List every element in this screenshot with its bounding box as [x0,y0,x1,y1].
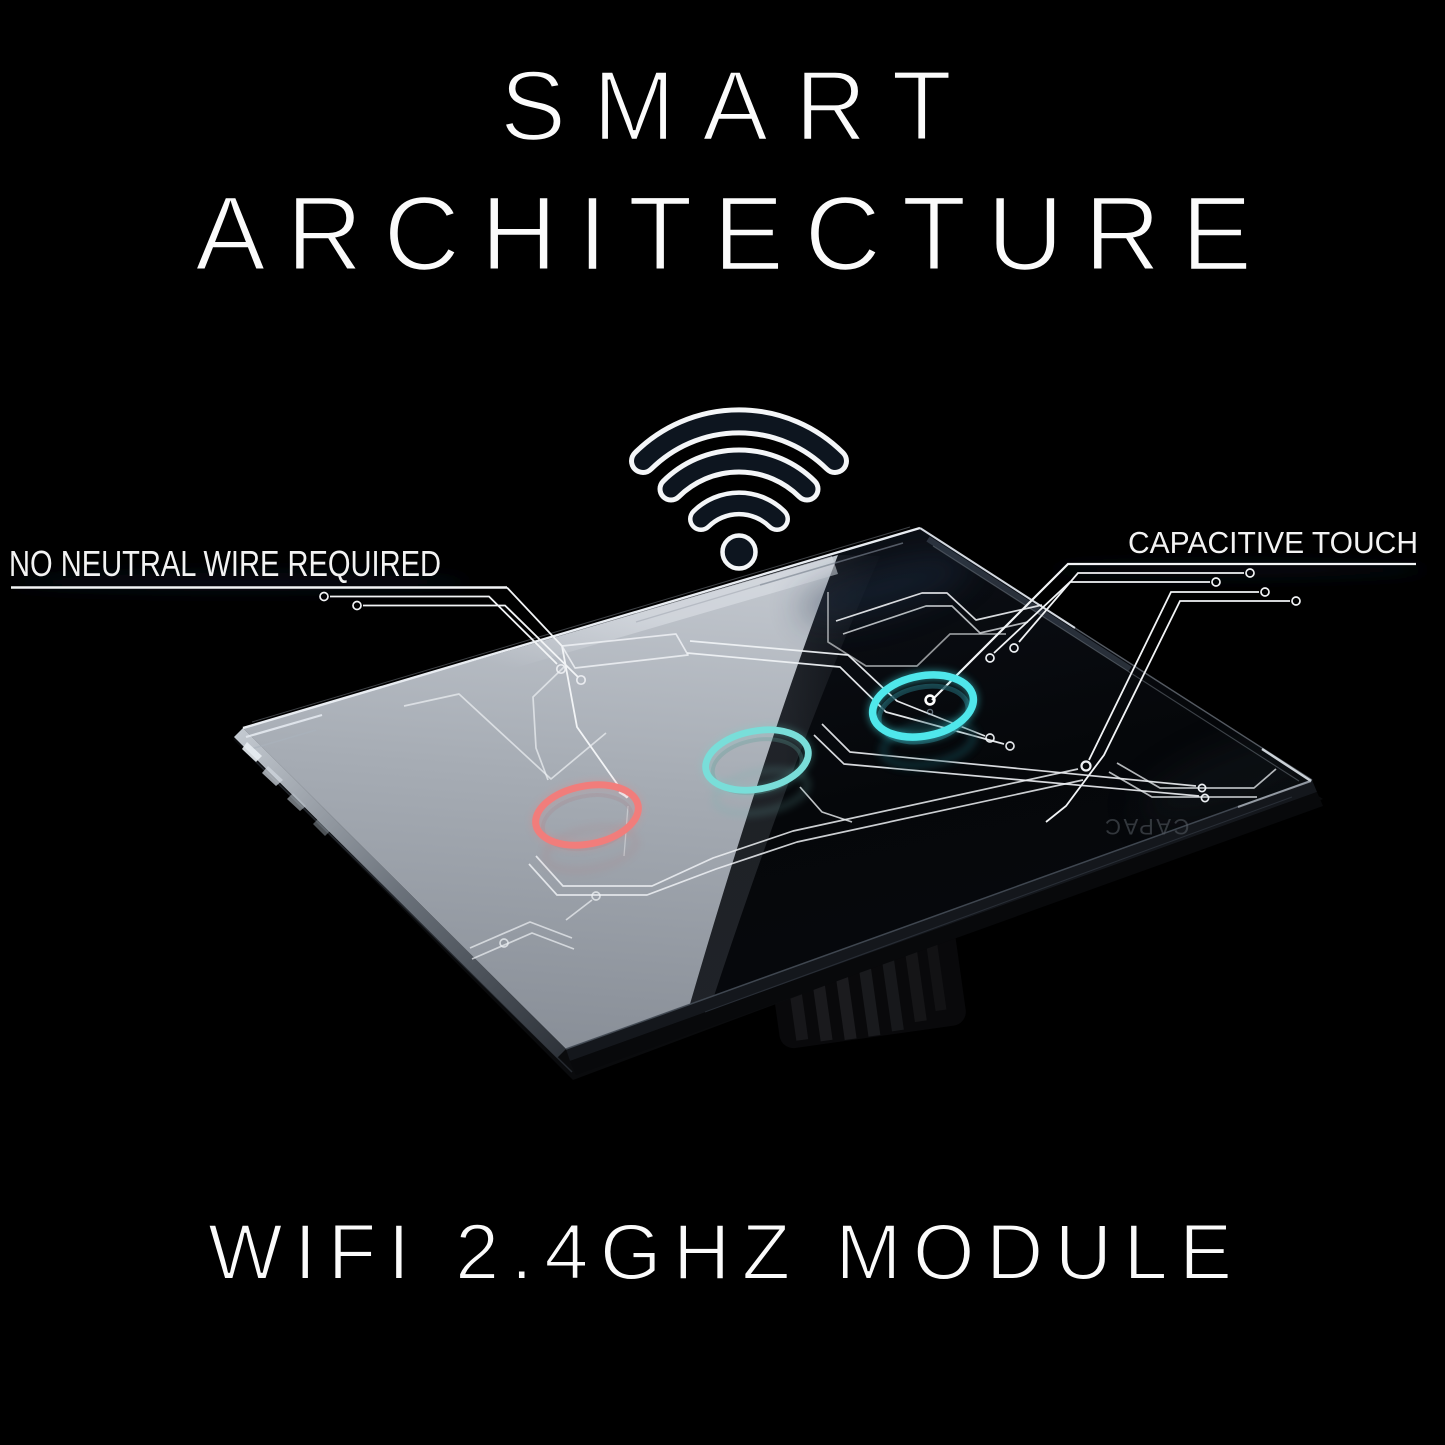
svg-text:CAPAC: CAPAC [1103,814,1190,839]
svg-text:CAPACITIVE TOUCH: CAPACITIVE TOUCH [1128,525,1418,560]
svg-text:SMART: SMART [500,50,977,161]
svg-text:WIFI 2.4GHZ MODULE: WIFI 2.4GHZ MODULE [208,1207,1246,1296]
svg-text:ARCHITECTURE: ARCHITECTURE [195,175,1277,293]
svg-text:NO NEUTRAL WIRE REQUIRED: NO NEUTRAL WIRE REQUIRED [9,543,441,584]
